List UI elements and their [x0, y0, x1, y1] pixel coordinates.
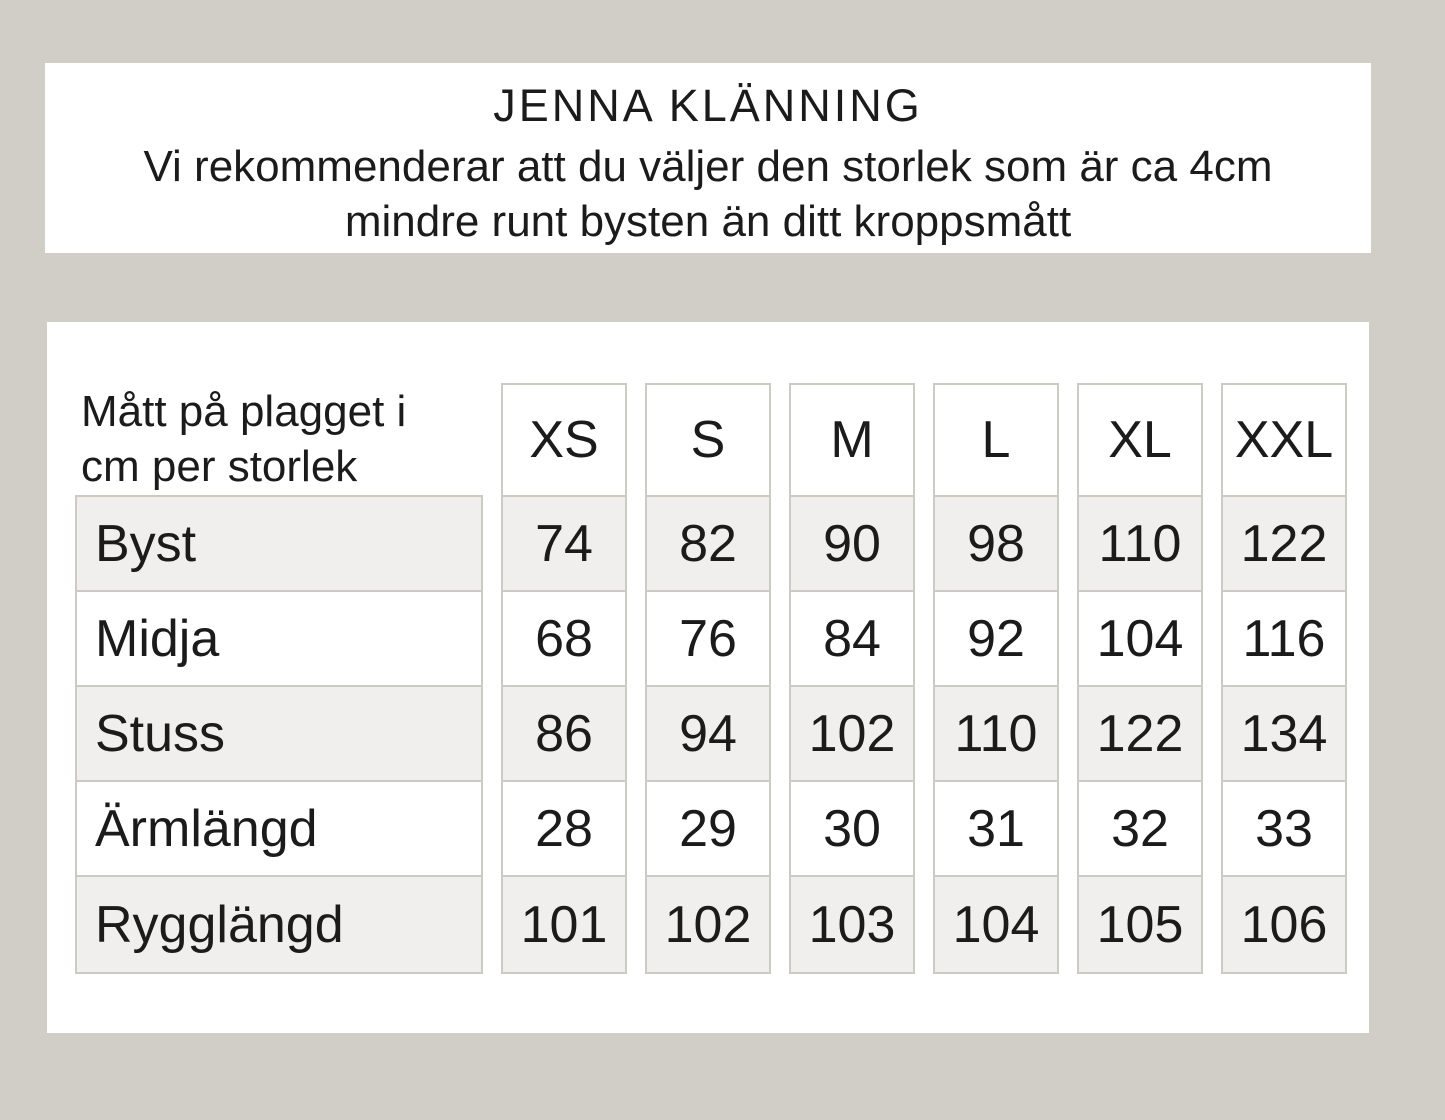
- size-cell: 92: [935, 592, 1057, 687]
- size-column-header: XL: [1079, 385, 1201, 497]
- size-table-panel: Mått på plagget i cm per storlek Byst Mi…: [47, 322, 1369, 1033]
- size-cell: 110: [935, 687, 1057, 782]
- corner-label-line-1: Mått på plagget i: [81, 384, 483, 439]
- size-cell: 122: [1223, 497, 1345, 592]
- size-cell: 101: [503, 877, 625, 972]
- size-cell: 33: [1223, 782, 1345, 877]
- size-cell: 32: [1079, 782, 1201, 877]
- size-recommendation-line-1: Vi rekommenderar att du väljer den storl…: [45, 139, 1371, 194]
- size-cell: 90: [791, 497, 913, 592]
- size-cell: 102: [791, 687, 913, 782]
- size-recommendation-line-2: mindre runt bysten än ditt kroppsmått: [45, 194, 1371, 249]
- size-cell: 76: [647, 592, 769, 687]
- size-column-m: M 90 84 102 30 103: [789, 383, 915, 974]
- size-cell: 84: [791, 592, 913, 687]
- size-column-header: XS: [503, 385, 625, 497]
- size-cell: 29: [647, 782, 769, 877]
- size-column-xl: XL 110 104 122 32 105: [1077, 383, 1203, 974]
- size-cell: 31: [935, 782, 1057, 877]
- size-cell: 104: [935, 877, 1057, 972]
- size-column-xxl: XXL 122 116 134 33 106: [1221, 383, 1347, 974]
- size-column-s: S 82 76 94 29 102: [645, 383, 771, 974]
- size-cell: 103: [791, 877, 913, 972]
- size-column-header: L: [935, 385, 1057, 497]
- size-cell: 30: [791, 782, 913, 877]
- corner-label: Mått på plagget i cm per storlek: [75, 383, 483, 495]
- size-cell: 104: [1079, 592, 1201, 687]
- size-guide-page: { "colors": { "page_background": "#d1cec…: [0, 0, 1445, 1120]
- size-cell: 82: [647, 497, 769, 592]
- row-label-armlangd: Ärmlängd: [77, 782, 481, 877]
- size-cell: 105: [1079, 877, 1201, 972]
- row-label-byst: Byst: [77, 497, 481, 592]
- size-cell: 86: [503, 687, 625, 782]
- size-cell: 28: [503, 782, 625, 877]
- corner-label-line-2: cm per storlek: [81, 439, 483, 494]
- size-column-l: L 98 92 110 31 104: [933, 383, 1059, 974]
- size-cell: 98: [935, 497, 1057, 592]
- size-cell: 106: [1223, 877, 1345, 972]
- row-label-stuss: Stuss: [77, 687, 481, 782]
- size-recommendation: Vi rekommenderar att du väljer den storl…: [45, 139, 1371, 249]
- size-cell: 122: [1079, 687, 1201, 782]
- size-column-header: M: [791, 385, 913, 497]
- size-cell: 74: [503, 497, 625, 592]
- product-title: JENNA KLÄNNING: [45, 80, 1371, 132]
- size-cell: 134: [1223, 687, 1345, 782]
- size-column-header: S: [647, 385, 769, 497]
- header-panel: JENNA KLÄNNING Vi rekommenderar att du v…: [45, 63, 1371, 253]
- measurement-label-column: Mått på plagget i cm per storlek Byst Mi…: [75, 383, 483, 974]
- size-column-xs: XS 74 68 86 28 101: [501, 383, 627, 974]
- measurement-labels: Byst Midja Stuss Ärmlängd Rygglängd: [75, 495, 483, 974]
- size-column-header: XXL: [1223, 385, 1345, 497]
- size-cell: 110: [1079, 497, 1201, 592]
- size-cell: 68: [503, 592, 625, 687]
- row-label-midja: Midja: [77, 592, 481, 687]
- size-cell: 94: [647, 687, 769, 782]
- size-cell: 102: [647, 877, 769, 972]
- size-table: Mått på plagget i cm per storlek Byst Mi…: [75, 383, 1347, 974]
- size-cell: 116: [1223, 592, 1345, 687]
- row-label-rygglangd: Rygglängd: [77, 877, 481, 972]
